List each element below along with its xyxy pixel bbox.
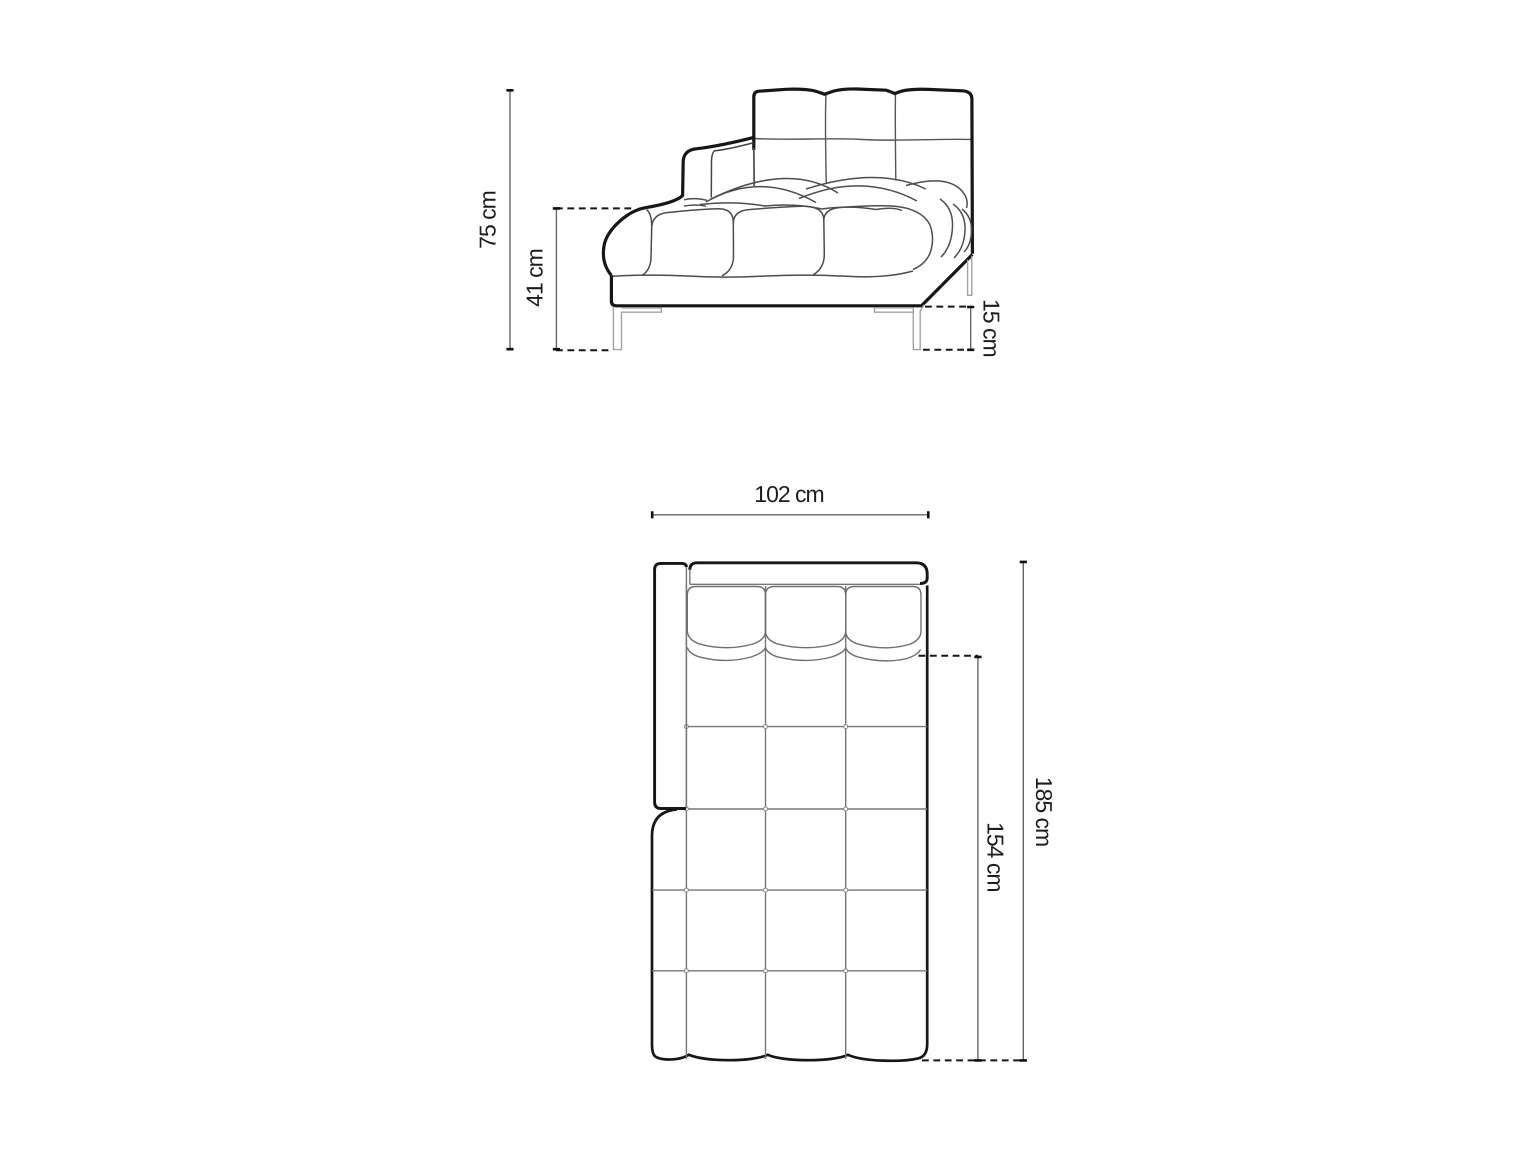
svg-text:185 cm: 185 cm	[1031, 777, 1057, 846]
svg-text:102 cm: 102 cm	[754, 481, 823, 507]
svg-text:41 cm: 41 cm	[522, 249, 548, 307]
svg-text:15 cm: 15 cm	[979, 299, 1005, 357]
svg-text:75 cm: 75 cm	[475, 191, 501, 249]
svg-text:154 cm: 154 cm	[983, 822, 1009, 891]
